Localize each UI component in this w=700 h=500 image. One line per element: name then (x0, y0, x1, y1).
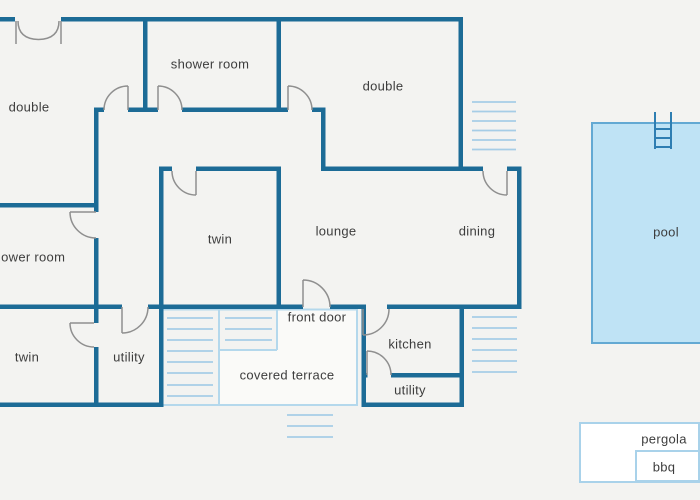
door-arcs-layer (16, 21, 507, 375)
terrace-outline (161, 310, 357, 406)
bbq-box (636, 451, 699, 481)
floor-plan-canvas: double shower room double shower room tw… (0, 0, 700, 500)
floor-plan-drawing (0, 0, 700, 500)
pool-area (592, 112, 700, 343)
